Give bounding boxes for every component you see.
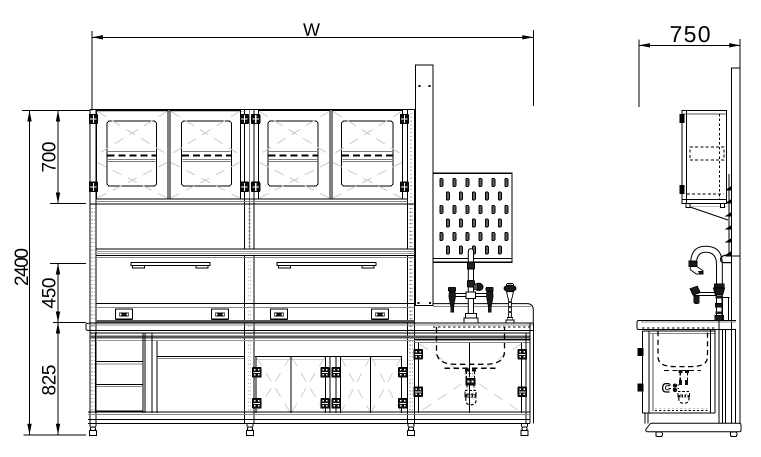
svg-text:2400: 2400	[12, 248, 33, 286]
svg-text:750: 750	[669, 21, 710, 47]
svg-text:825: 825	[40, 365, 61, 396]
svg-text:700: 700	[40, 142, 61, 173]
svg-text:450: 450	[40, 278, 61, 309]
svg-text:W: W	[303, 20, 320, 40]
